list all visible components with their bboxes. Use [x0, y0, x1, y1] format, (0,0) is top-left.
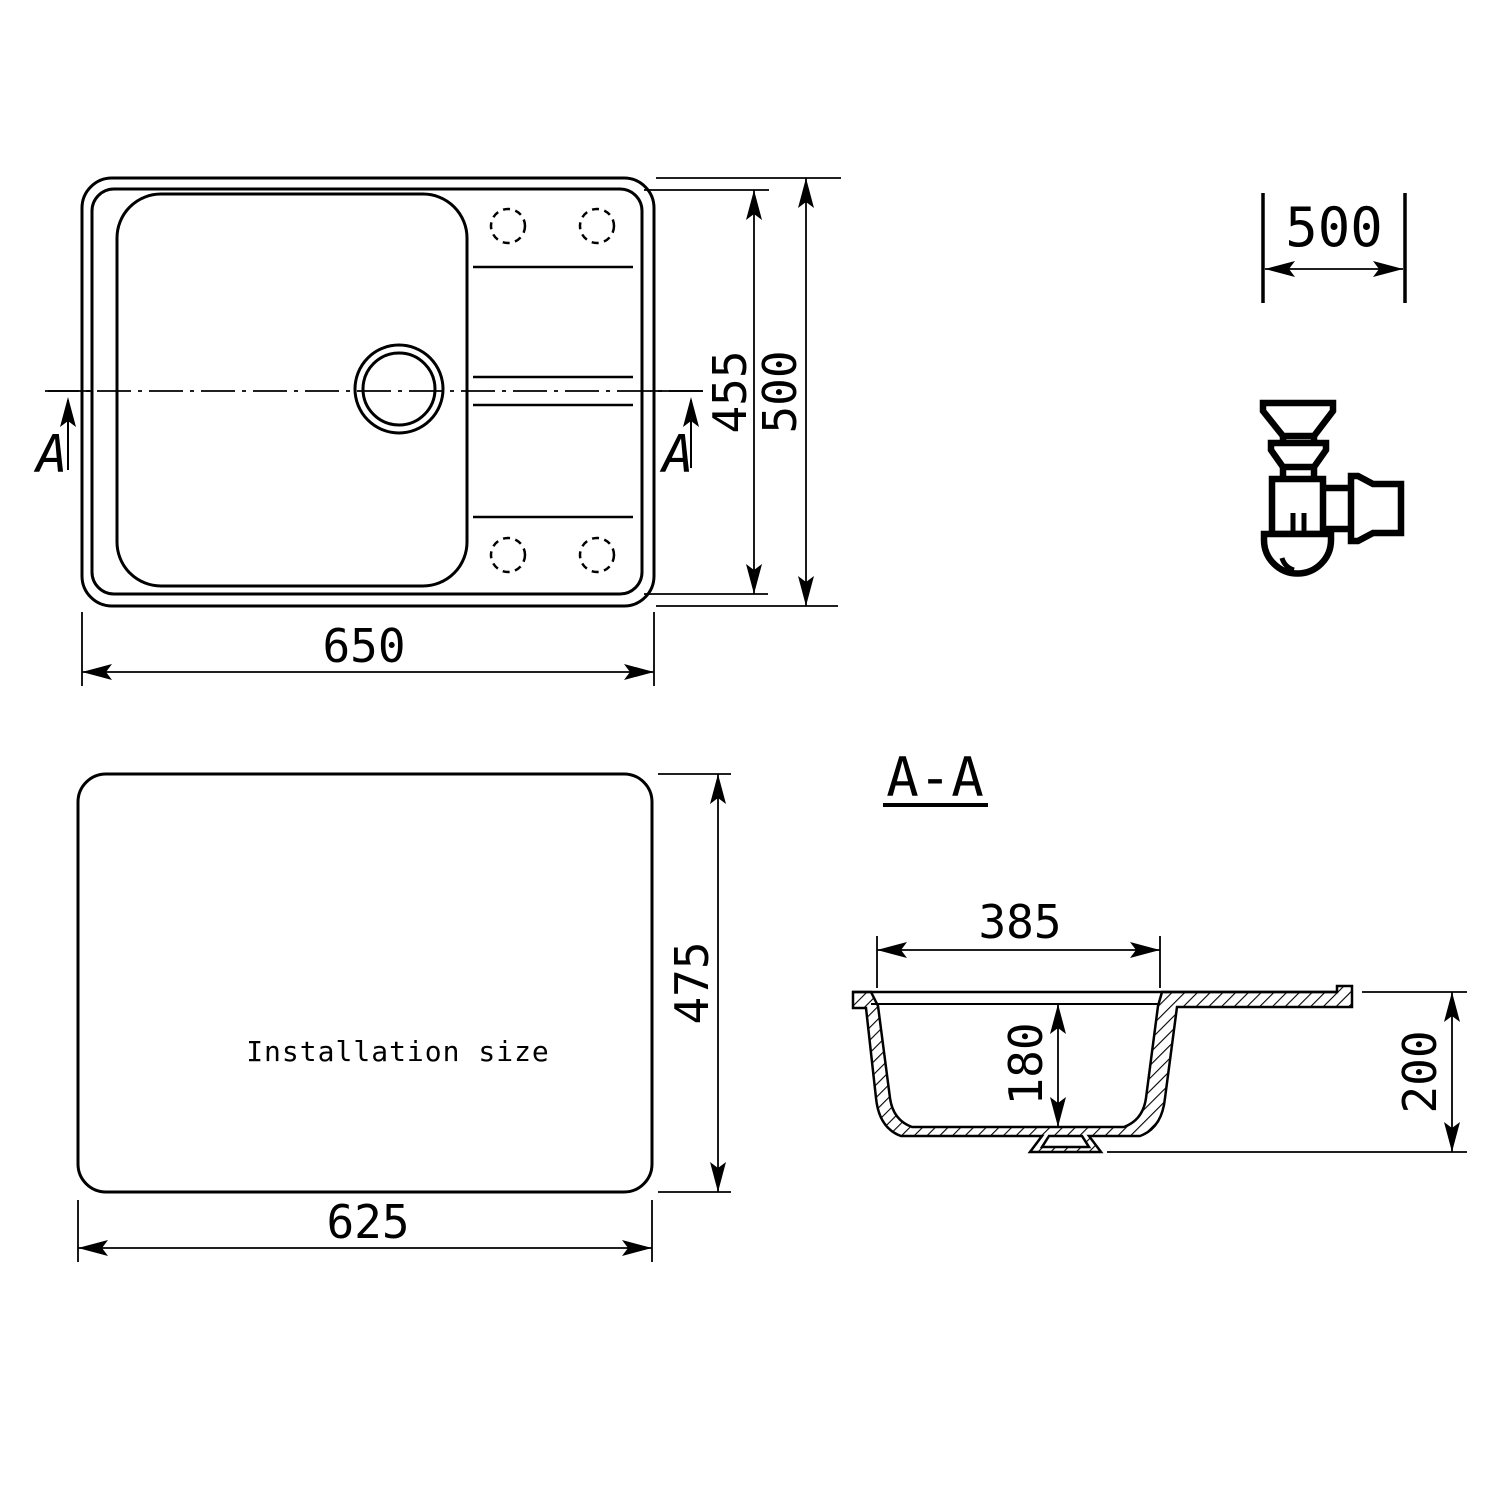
drain-inner-circle	[363, 353, 435, 425]
siphon-icon	[1263, 403, 1401, 573]
sink-technical-drawing: 650 455 500 A A 500	[0, 0, 1500, 1500]
section-title-label: A-A	[886, 746, 984, 809]
drawing-sheet: 650 455 500 A A 500	[0, 0, 1500, 1500]
dim-625-label: 625	[326, 1195, 409, 1249]
dim-180-label: 180	[999, 1022, 1053, 1105]
bowl-outline	[117, 194, 467, 586]
siphon-funnel	[1263, 403, 1333, 436]
siphon-cup	[1264, 534, 1331, 573]
siphon-outlet-pipe	[1323, 488, 1351, 529]
dim-475-label: 475	[665, 941, 719, 1024]
drain-hole	[355, 345, 443, 433]
dim-650-label: 650	[322, 619, 405, 673]
cabinet-width-label: 500	[1285, 196, 1383, 259]
drain-boss-opening	[1042, 1136, 1089, 1147]
tap-hole	[491, 209, 525, 243]
section-wall-hatched	[853, 986, 1352, 1152]
tap-hole	[580, 538, 614, 572]
drainboard-lines	[473, 267, 633, 517]
installation-size-label: Installation size	[246, 1035, 550, 1068]
dim-200-label: 200	[1393, 1030, 1447, 1113]
installation-view	[78, 774, 731, 1262]
section-view	[852, 805, 1467, 1152]
installation-cutout-outline	[78, 774, 652, 1192]
tap-hole	[491, 538, 525, 572]
drain-outer-circle	[355, 345, 443, 433]
dim-385-label: 385	[978, 895, 1061, 949]
tap-hole	[580, 209, 614, 243]
sink-outer-outline	[82, 178, 654, 606]
siphon-outlet-connector	[1351, 476, 1401, 541]
siphon-nut	[1271, 443, 1326, 467]
section-marker-a-left-label: A	[33, 425, 67, 485]
dim-455-label: 455	[703, 350, 757, 433]
section-marker-a-right-label: A	[659, 425, 693, 485]
dim-500-label: 500	[753, 350, 807, 433]
siphon-body	[1272, 479, 1323, 534]
